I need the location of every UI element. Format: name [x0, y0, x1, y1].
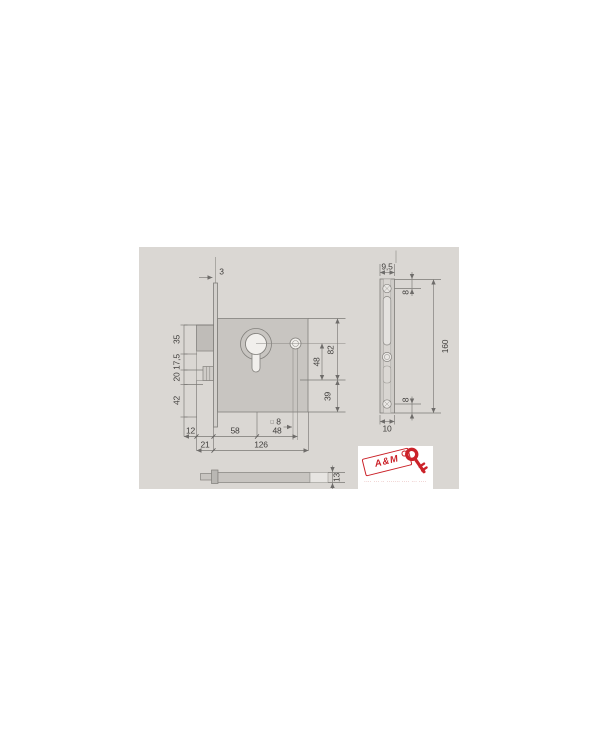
cylinder-hole-circle	[246, 334, 267, 355]
bolt-slot	[383, 297, 391, 346]
body-bar-top	[218, 473, 310, 483]
brand-name: A&M	[374, 454, 400, 469]
drawing-panel: 3 35 17,5 20 42 48 82 39 □ 8 12 58 48 21…	[139, 247, 459, 489]
dim-label-13: 13	[332, 473, 342, 483]
dim-label-160: 160	[440, 339, 450, 353]
dim-label-39: 39	[323, 392, 333, 402]
dim-label-35: 35	[172, 335, 182, 345]
dim-label-48-vertical: 48	[312, 357, 322, 367]
faceplate-flange-top	[212, 470, 219, 484]
lock-body	[218, 319, 309, 413]
cylinder-hole-side	[382, 352, 391, 361]
dim-label-21: 21	[200, 440, 210, 450]
dim-label-42: 42	[172, 396, 182, 406]
dim-label-58: 58	[230, 426, 240, 436]
dim-label-12: 12	[186, 426, 196, 436]
dim-label-9-5: 9,5	[381, 262, 393, 272]
rear-housing	[197, 325, 214, 351]
dim-label-82: 82	[326, 345, 336, 355]
dim-label-126: 126	[254, 440, 268, 450]
top-view	[201, 470, 329, 484]
dim-label-10: 10	[382, 424, 392, 434]
key-icon	[402, 446, 432, 478]
latch-stub-top	[201, 474, 213, 481]
faceplate-edge	[214, 283, 218, 427]
brand-logo: A&M ···· ··· ·· ······· ···· ··· ····	[358, 446, 433, 489]
brand-tagline: ···· ··· ·· ······· ···· ··· ····	[359, 479, 432, 484]
dim-label-8-bottom: 8	[401, 397, 411, 402]
latch-bolt	[203, 367, 214, 381]
dim-label-48-horizontal: 48	[272, 426, 282, 436]
dim-label-17-5: 17,5	[172, 354, 182, 370]
dim-label-20: 20	[172, 372, 182, 382]
front-view	[197, 257, 346, 440]
lower-slot	[383, 366, 391, 383]
side-view	[380, 251, 396, 414]
body-bar-end	[310, 473, 328, 483]
dim-label-3: 3	[219, 267, 224, 277]
dim-label-8-top: 8	[401, 290, 411, 295]
